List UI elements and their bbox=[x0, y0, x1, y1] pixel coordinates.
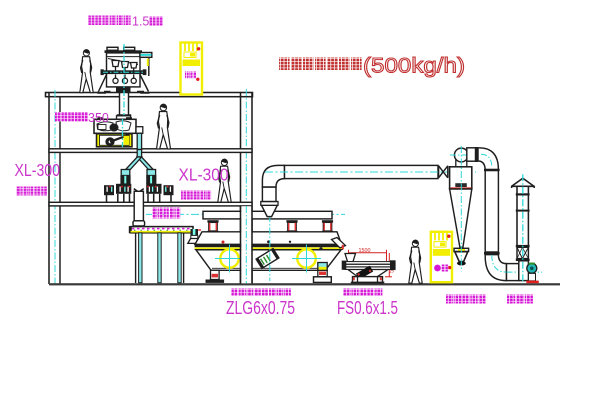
svg-text:XL-300: XL-300 bbox=[179, 164, 229, 184]
svg-text:XL-300: XL-300 bbox=[15, 160, 61, 180]
svg-text:ZLG6x0.75: ZLG6x0.75 bbox=[226, 298, 295, 318]
svg-text:350: 350 bbox=[88, 111, 109, 125]
svg-text:(500kg/h): (500kg/h) bbox=[363, 54, 465, 78]
svg-text:1500: 1500 bbox=[359, 248, 371, 254]
svg-text:FS0.6x1.5: FS0.6x1.5 bbox=[337, 298, 398, 318]
svg-text:1.5: 1.5 bbox=[132, 15, 149, 29]
